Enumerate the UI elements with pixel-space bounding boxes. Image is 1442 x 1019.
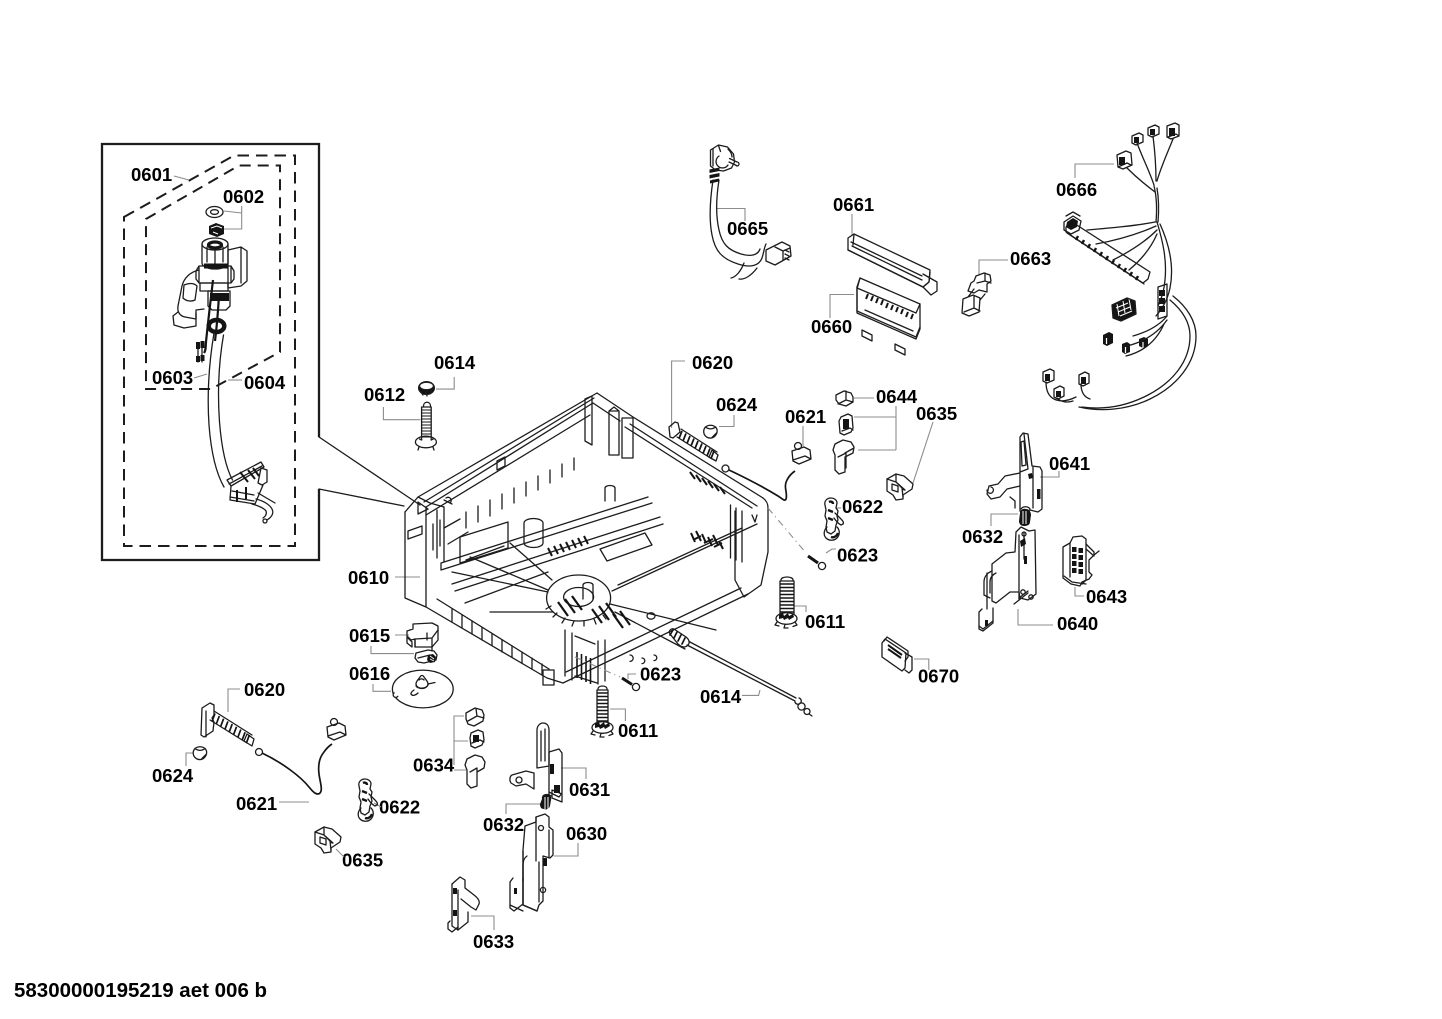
- svg-text:0623: 0623: [640, 664, 681, 685]
- svg-text:0616: 0616: [349, 663, 390, 684]
- svg-text:0611: 0611: [805, 611, 845, 632]
- svg-text:0615: 0615: [349, 625, 390, 646]
- svg-text:0644: 0644: [876, 386, 918, 407]
- svg-text:0611: 0611: [618, 720, 658, 741]
- svg-text:0635: 0635: [916, 403, 957, 424]
- svg-text:0610: 0610: [348, 567, 389, 588]
- svg-text:0624: 0624: [716, 394, 758, 415]
- svg-text:0643: 0643: [1086, 586, 1127, 607]
- svg-text:0634: 0634: [413, 755, 455, 776]
- svg-text:58300000195219 aet 006 b: 58300000195219 aet 006 b: [14, 979, 267, 1002]
- svg-text:0623: 0623: [837, 545, 878, 566]
- svg-text:0614: 0614: [700, 686, 742, 707]
- svg-text:0665: 0665: [727, 218, 768, 239]
- svg-text:0661: 0661: [833, 194, 874, 215]
- svg-text:0624: 0624: [152, 765, 194, 786]
- svg-text:0620: 0620: [244, 679, 285, 700]
- svg-text:0632: 0632: [483, 814, 524, 835]
- svg-text:0601: 0601: [131, 164, 172, 185]
- svg-text:0612: 0612: [364, 384, 405, 405]
- svg-text:0621: 0621: [236, 793, 277, 814]
- svg-text:0602: 0602: [223, 186, 264, 207]
- svg-text:0663: 0663: [1010, 248, 1051, 269]
- svg-text:0633: 0633: [473, 931, 514, 952]
- svg-text:0604: 0604: [244, 372, 286, 393]
- svg-text:0635: 0635: [342, 850, 383, 871]
- svg-text:0660: 0660: [811, 316, 852, 337]
- svg-text:0640: 0640: [1057, 613, 1098, 634]
- svg-text:0620: 0620: [692, 352, 733, 373]
- svg-text:0666: 0666: [1056, 179, 1097, 200]
- svg-text:0641: 0641: [1049, 453, 1090, 474]
- svg-text:0621: 0621: [785, 406, 826, 427]
- svg-text:0622: 0622: [842, 496, 883, 517]
- svg-text:0614: 0614: [434, 352, 476, 373]
- svg-text:0632: 0632: [962, 526, 1003, 547]
- svg-text:0622: 0622: [379, 797, 420, 818]
- svg-text:0631: 0631: [569, 779, 610, 800]
- svg-text:0603: 0603: [152, 367, 193, 388]
- svg-text:0630: 0630: [566, 823, 607, 844]
- svg-text:0670: 0670: [918, 666, 959, 687]
